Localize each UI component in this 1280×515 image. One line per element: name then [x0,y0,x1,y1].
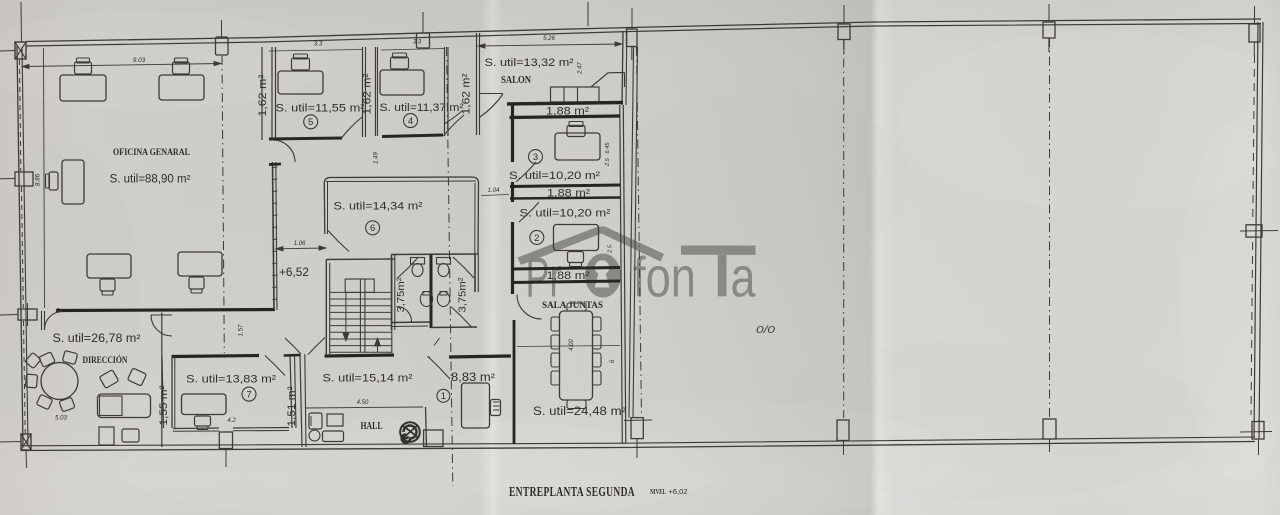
svg-text:5.03: 5.03 [55,416,67,422]
svg-text:1: 1 [441,391,446,402]
svg-text:1,51 m²: 1,51 m² [286,386,298,426]
svg-text:6.45: 6.45 [605,142,611,154]
svg-text:S. util=14,34 m²: S. util=14,34 m² [334,201,423,213]
svg-text:4.2: 4.2 [227,418,236,424]
svg-text:2.5: 2.5 [605,157,611,167]
svg-text:DIRECCIÓN: DIRECCIÓN [83,354,128,366]
svg-text:3.3: 3.3 [314,42,323,48]
svg-text:fon: fon [633,246,696,310]
svg-text:8.86: 8.86 [35,173,42,186]
svg-text:6: 6 [370,223,375,234]
svg-text:+6,02: +6,02 [669,487,688,496]
svg-text:2.47: 2.47 [578,62,584,75]
svg-text:NIVEL: NIVEL [650,488,666,496]
svg-text:9.03: 9.03 [133,57,146,64]
svg-text:OFICINA GENARAL: OFICINA GENARAL [113,148,190,158]
svg-text:1.04: 1.04 [488,188,500,194]
svg-text:1,55 m²: 1,55 m² [158,385,170,425]
svg-text:S. util=24,48 m²: S. util=24,48 m² [533,406,626,418]
svg-text:S. util=13,32 m²: S. util=13,32 m² [485,57,574,69]
svg-text:3.3: 3.3 [413,40,422,46]
svg-text:a: a [731,246,756,310]
svg-text:4: 4 [408,116,413,127]
svg-text:7: 7 [246,390,251,401]
svg-text:8,83 m²: 8,83 m² [451,372,495,384]
svg-text:0/0: 0/0 [756,325,775,336]
svg-text:1.06: 1.06 [294,241,306,247]
svg-text:1.49: 1.49 [374,152,380,164]
svg-text:S. util=88,90 m²: S. util=88,90 m² [110,174,191,186]
svg-text:S. util=26,78 m²: S. util=26,78 m² [53,333,141,345]
svg-text:5.26: 5.26 [543,36,555,42]
svg-text:ENTREPLANTA SEGUNDA: ENTREPLANTA SEGUNDA [509,484,635,499]
svg-text:S. util=15,14 m²: S. util=15,14 m² [323,373,413,385]
svg-text:5: 5 [308,117,313,128]
svg-text:S. util=11,55 m²: S. util=11,55 m² [276,103,365,115]
svg-text:3,75m²: 3,75m² [457,277,469,313]
svg-text:4.50: 4.50 [357,400,369,406]
svg-text:SALON: SALON [501,75,532,86]
svg-text:2: 2 [534,233,539,244]
svg-text:3,75m²: 3,75m² [395,277,407,313]
svg-text:S. util=10,20 m²: S. util=10,20 m² [509,170,600,182]
svg-text:+6,52: +6,52 [279,267,309,279]
svg-text:1,62 m²: 1,62 m² [362,73,374,114]
svg-text:4.00: 4.00 [569,339,575,351]
svg-text:1,62 m²: 1,62 m² [257,74,269,116]
svg-text:1.57: 1.57 [239,324,245,336]
svg-text:1,62 m²: 1,62 m² [461,73,473,114]
svg-text:SALA JUNTAS: SALA JUNTAS [542,300,603,311]
svg-text:S. util=11,37 m²: S. util=11,37 m² [380,102,464,114]
svg-text:2.5: 2.5 [608,244,614,254]
svg-text:S. util=10,20 m²: S. util=10,20 m² [520,208,611,220]
svg-text:3: 3 [533,152,538,163]
svg-text:HALL: HALL [361,421,383,432]
svg-text:S. util=13,83 m²: S. util=13,83 m² [186,374,276,386]
